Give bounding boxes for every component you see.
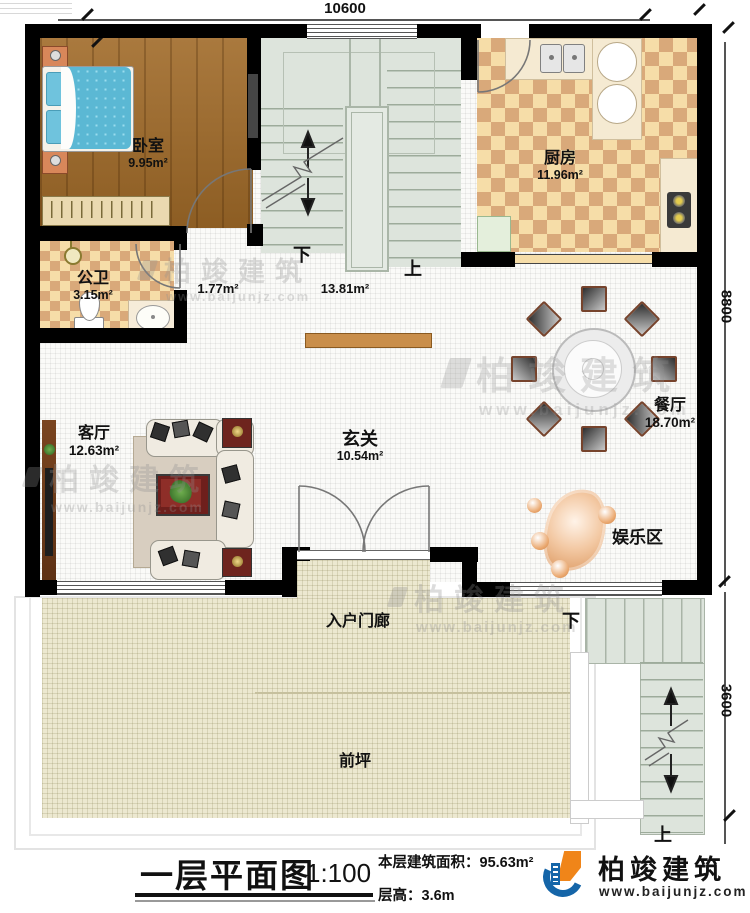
hall-area-label: 1.77m² [183, 282, 253, 297]
floor-plan-canvas: 10600 8800 3600 [0, 0, 750, 913]
room-area: 12.63m² [44, 443, 144, 458]
watermark-logo-icon [22, 467, 43, 487]
room-area: 11.96m² [505, 168, 615, 182]
title-underline-thin [135, 900, 375, 902]
room-name: 餐厅 [622, 397, 718, 415]
room-name: 客厅 [44, 425, 144, 443]
brand-name: 柏竣建筑 [598, 848, 726, 887]
room-name: 厨房 [505, 150, 615, 168]
floor-area-line: 本层建筑面积：95.63m² [378, 851, 534, 872]
room-label-bathroom: 公卫 3.15m² [48, 270, 138, 302]
watermark-url: www.baijunjz.com [416, 619, 577, 636]
watermark: 柏竣建筑 www.baijunjz.com [390, 575, 577, 636]
room-name: 公卫 [48, 270, 138, 288]
entry-door-arc-right [363, 486, 429, 552]
room-area: 3.15m² [48, 288, 138, 302]
outdoor-stair-down-label: 下 [556, 611, 586, 631]
room-label-bedroom: 卧室 9.95m² [98, 138, 198, 170]
room-label-entertainment: 娱乐区 [585, 528, 690, 547]
watermark-logo-icon [387, 587, 408, 607]
watermark-logo-icon [440, 358, 472, 388]
floor-height-value: 3.6m [422, 888, 455, 904]
room-area: 10.54m² [310, 449, 410, 463]
watermark-text: 柏竣建筑 [476, 345, 684, 400]
floor-height-label: 层高： [378, 888, 422, 904]
room-label-kitchen: 厨房 11.96m² [505, 150, 615, 182]
watermark-text: 柏竣建筑 [414, 575, 574, 619]
room-label-foyer: 玄关 10.54m² [310, 429, 410, 463]
stair-down-label: 下 [287, 245, 317, 265]
floor-area-value: 95.63m² [480, 855, 534, 871]
outdoor-stair-up-label: 上 [648, 825, 678, 845]
room-label-living: 客厅 12.63m² [44, 425, 144, 458]
floor-area-label: 本层建筑面积： [378, 855, 480, 871]
room-name: 玄关 [310, 429, 410, 449]
logo-windows [553, 866, 558, 882]
room-label-dining: 餐厅 18.70m² [622, 397, 718, 430]
title-underline [135, 893, 373, 897]
plan-scale: 1:100 [306, 858, 371, 889]
entry-door-arc-left [299, 486, 365, 552]
room-area: 9.95m² [98, 156, 198, 170]
room-label-yard: 前坪 [315, 753, 395, 771]
kitchen-door-arc [478, 40, 530, 92]
room-name: 卧室 [98, 138, 198, 156]
bedroom-door-arc [187, 169, 251, 233]
watermark-url: www.baijunjz.com [51, 499, 209, 515]
brand-logo-icon [543, 849, 591, 903]
brand-website: www.baijunjz.com [599, 884, 748, 899]
watermark-logo-icon [137, 260, 158, 280]
room-area: 18.70m² [622, 415, 718, 430]
watermark: 柏竣建筑 www.baijunjz.com [25, 455, 209, 515]
stair-up-label: 上 [398, 259, 428, 279]
watermark-text: 柏竣建筑 [49, 455, 209, 499]
plan-title: 一层平面图 [140, 849, 315, 897]
stairwell-area-label: 13.81m² [305, 282, 385, 297]
room-label-porch: 入户门廊 [308, 613, 408, 631]
floor-height-line: 层高：3.6m [378, 884, 455, 905]
